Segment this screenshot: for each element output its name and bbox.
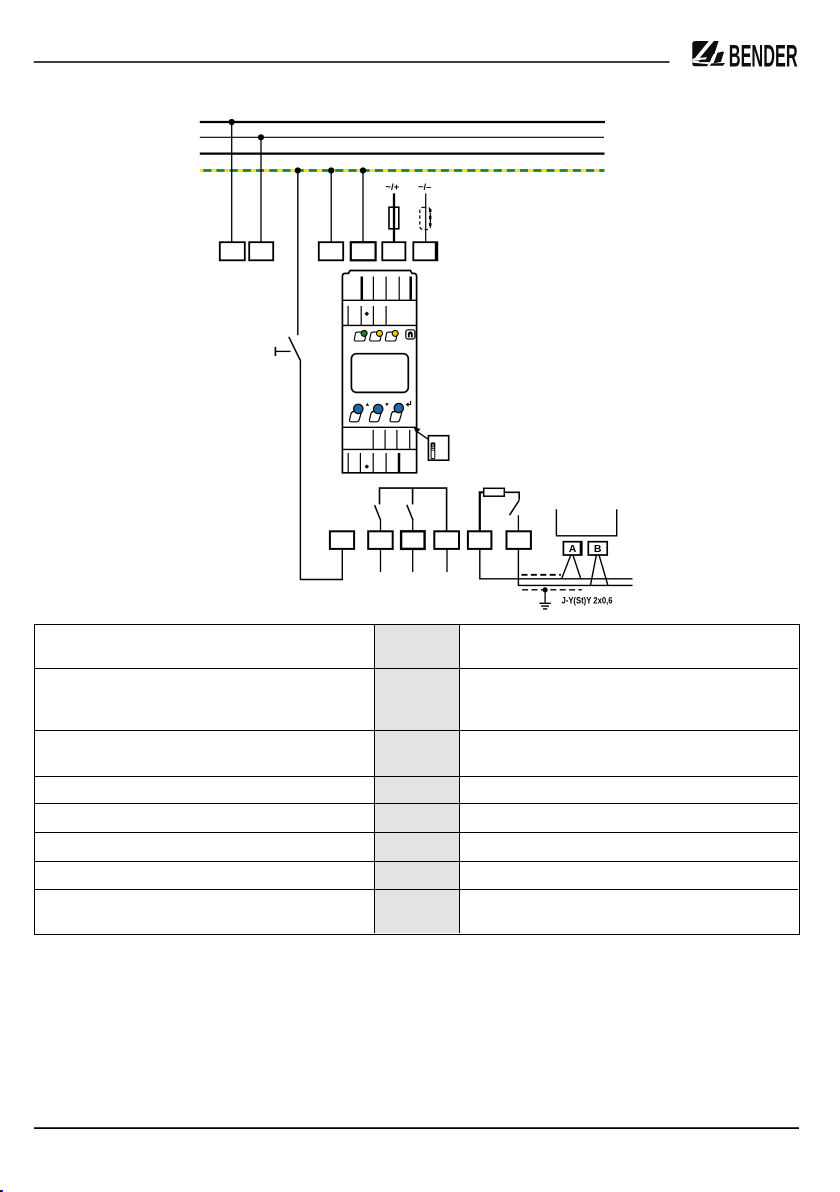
svg-text:~/–: ~/– — [418, 182, 431, 193]
svg-text:B: B — [594, 543, 602, 555]
svg-text:~/+: ~/+ — [386, 182, 400, 193]
svg-text:J-Y(St)Y 2x0,6: J-Y(St)Y 2x0,6 — [562, 595, 613, 605]
svg-text:BENDER: BENDER — [729, 38, 798, 73]
svg-text:A: A — [569, 543, 577, 555]
